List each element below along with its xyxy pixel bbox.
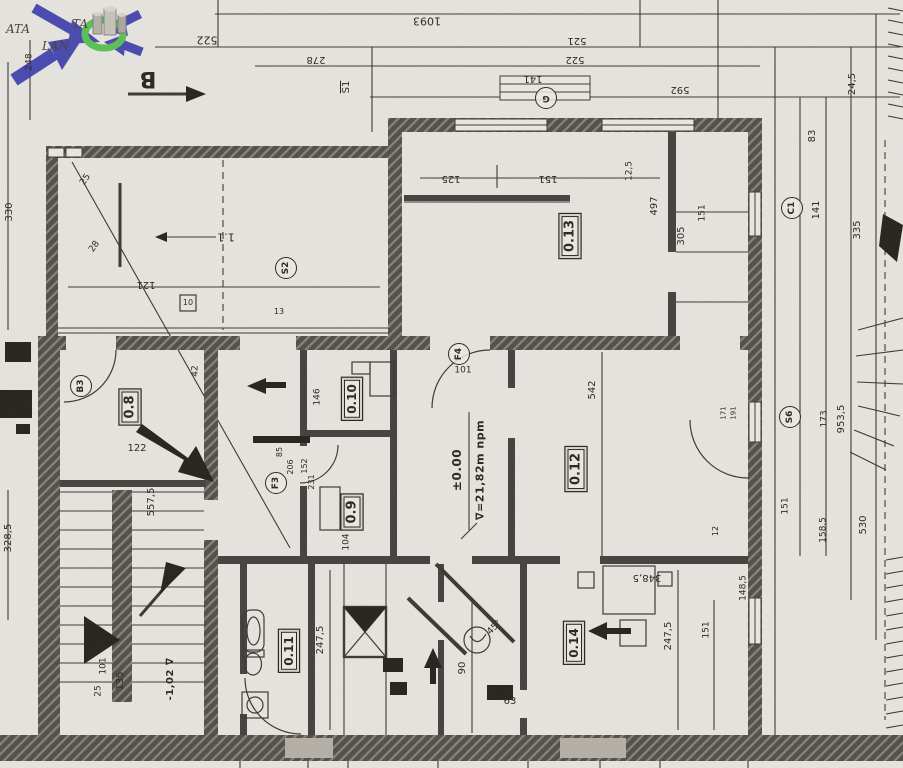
scan-noise-overlay — [0, 0, 903, 768]
scanned-floor-plan: ATA TA LAN 1093522278521522141592BS12483… — [0, 0, 903, 768]
floor-plan-drawing: ATA TA LAN — [0, 0, 903, 768]
